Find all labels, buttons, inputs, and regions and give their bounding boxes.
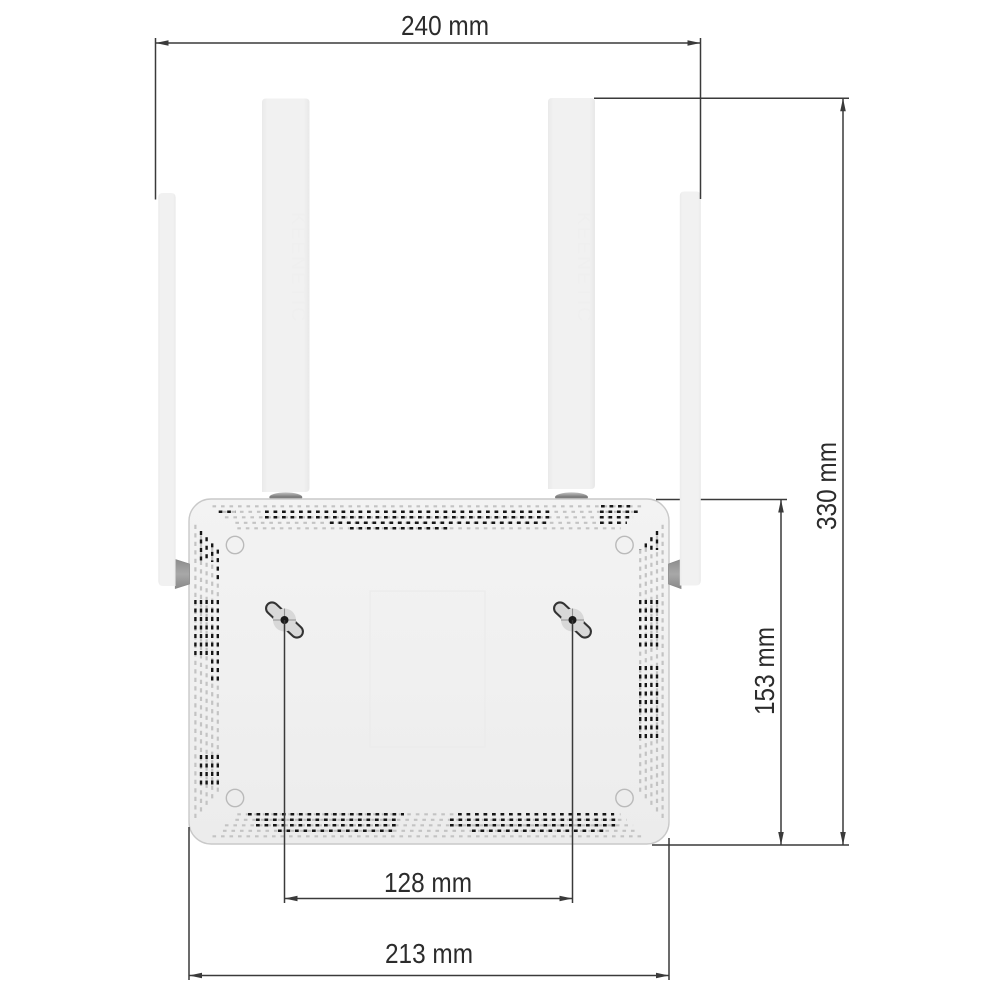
svg-text:330 mm: 330 mm (811, 442, 842, 530)
svg-text:KEENETIC: KEENETIC (573, 212, 594, 323)
svg-text:240 mm: 240 mm (401, 10, 489, 41)
svg-text:KEENETIC: KEENETIC (287, 212, 308, 323)
svg-text:153 mm: 153 mm (749, 627, 780, 715)
svg-text:128 mm: 128 mm (384, 867, 472, 898)
svg-text:213 mm: 213 mm (385, 938, 473, 969)
